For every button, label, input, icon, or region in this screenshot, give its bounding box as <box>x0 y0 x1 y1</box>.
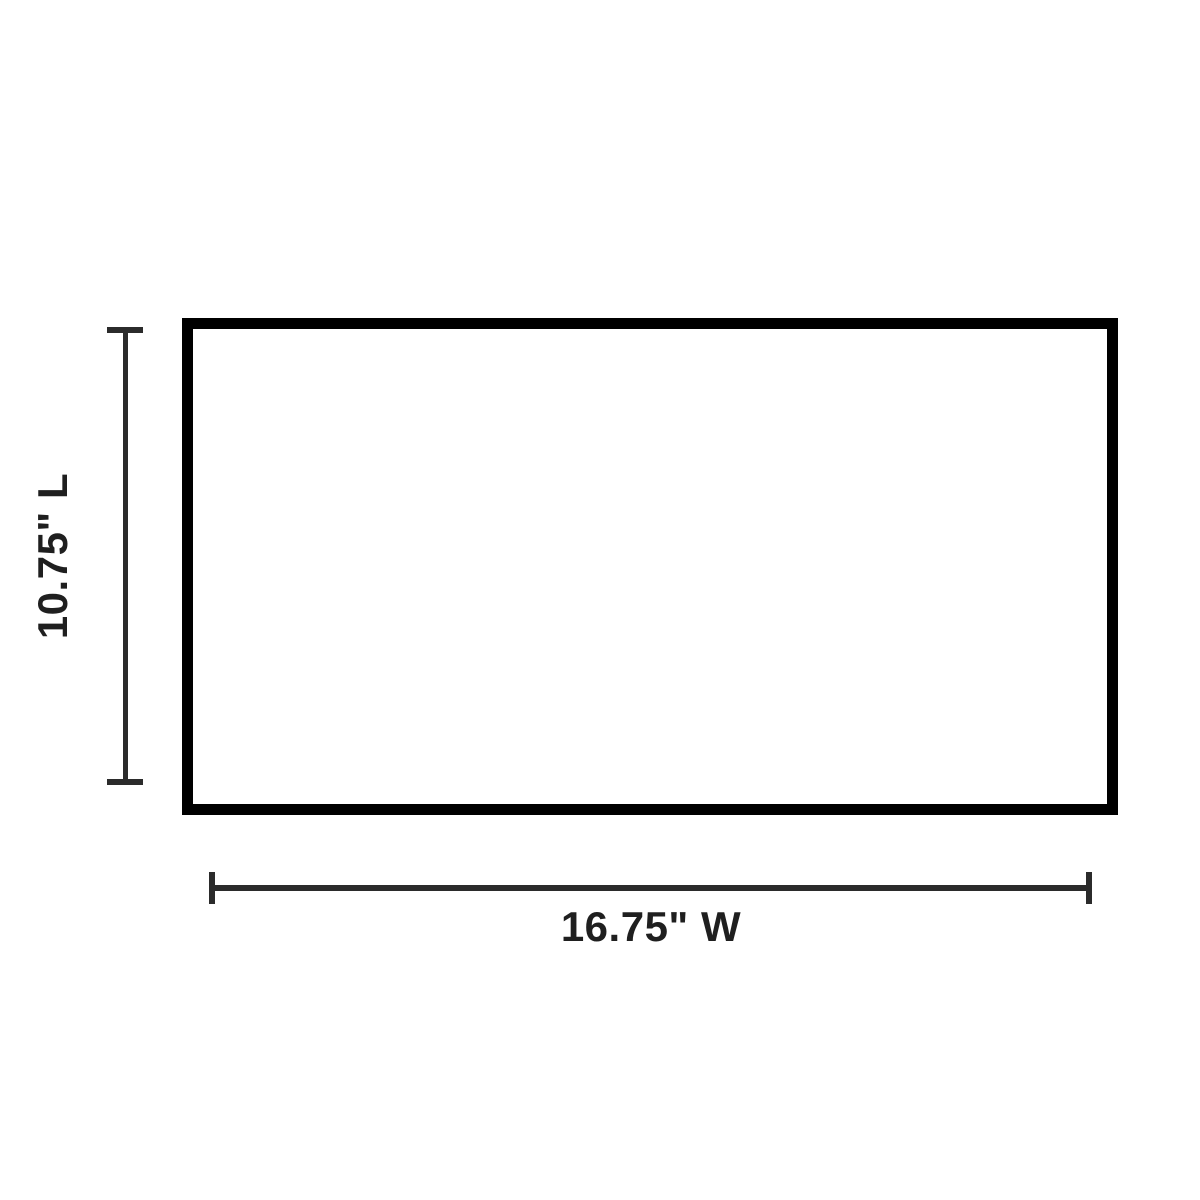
width-dimension-cap-right <box>1086 872 1092 904</box>
length-dimension-label: 10.75" L <box>29 473 77 639</box>
length-dimension-line <box>123 328 128 784</box>
dimension-diagram: 10.75" L 16.75" W <box>0 0 1200 1200</box>
width-dimension-line <box>212 885 1090 891</box>
panel-outline-rectangle <box>182 318 1118 815</box>
width-dimension-label: 16.75" W <box>212 903 1090 951</box>
length-dimension-cap-bottom <box>107 779 143 785</box>
